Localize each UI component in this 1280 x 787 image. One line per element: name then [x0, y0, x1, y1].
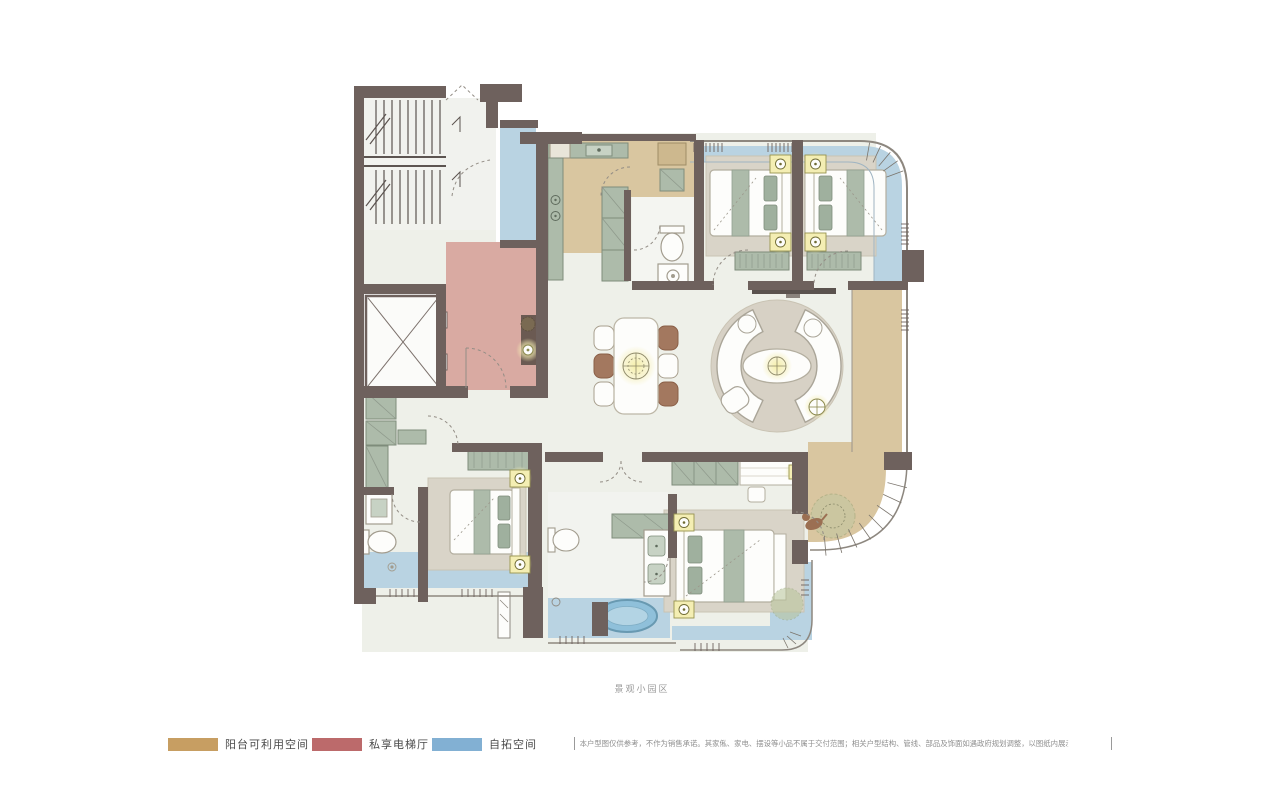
lamp [508, 552, 532, 576]
plant [771, 588, 803, 620]
lamp [672, 510, 696, 534]
elevator-shaft [366, 296, 447, 388]
disclaimer-text: 本户型图仅供参考，不作为销售承诺。其家俬、家电、摆设等小品不属于交付范围；相关户… [575, 738, 1068, 748]
bed-bench [735, 252, 789, 270]
lamp [672, 597, 696, 621]
legend-swatch-balcony-usable [168, 738, 218, 751]
disclaimer-right-bar [1111, 737, 1112, 750]
dining-area [594, 318, 678, 414]
legend-item-private-elevator-hall: 私享电梯厅 [312, 735, 429, 753]
legend-swatch-expandable-space [432, 738, 482, 751]
legend-item-expandable-space: 自拓空间 [432, 735, 537, 753]
toilet [553, 529, 579, 551]
legend-label: 私享电梯厅 [369, 736, 429, 752]
plan-caption: 景观小园区 [542, 682, 742, 695]
legend-label: 自拓空间 [489, 736, 537, 752]
disclaimer: 本户型图仅供参考，不作为销售承诺。其家俬、家电、摆设等小品不属于交付范围；相关户… [574, 737, 1112, 750]
lamp [803, 152, 827, 176]
legend-item-balcony-usable: 阳台可利用空间 [168, 735, 309, 753]
shower-door [498, 592, 510, 638]
floorplan-page: 景观小园区 阳台可利用空间 私享电梯厅 自拓空间 本户型图仅供参考，不作为销售承… [0, 0, 1280, 787]
bed-runner [732, 170, 749, 236]
legend-label: 阳台可利用空间 [225, 736, 309, 752]
lamp [768, 152, 792, 176]
lamp [768, 230, 792, 254]
legend-swatch-private-elevator-hall [312, 738, 362, 751]
floor-plan [0, 0, 1280, 787]
sink-faucet-icon [597, 148, 601, 152]
lamp [803, 230, 827, 254]
lamp [508, 466, 532, 490]
